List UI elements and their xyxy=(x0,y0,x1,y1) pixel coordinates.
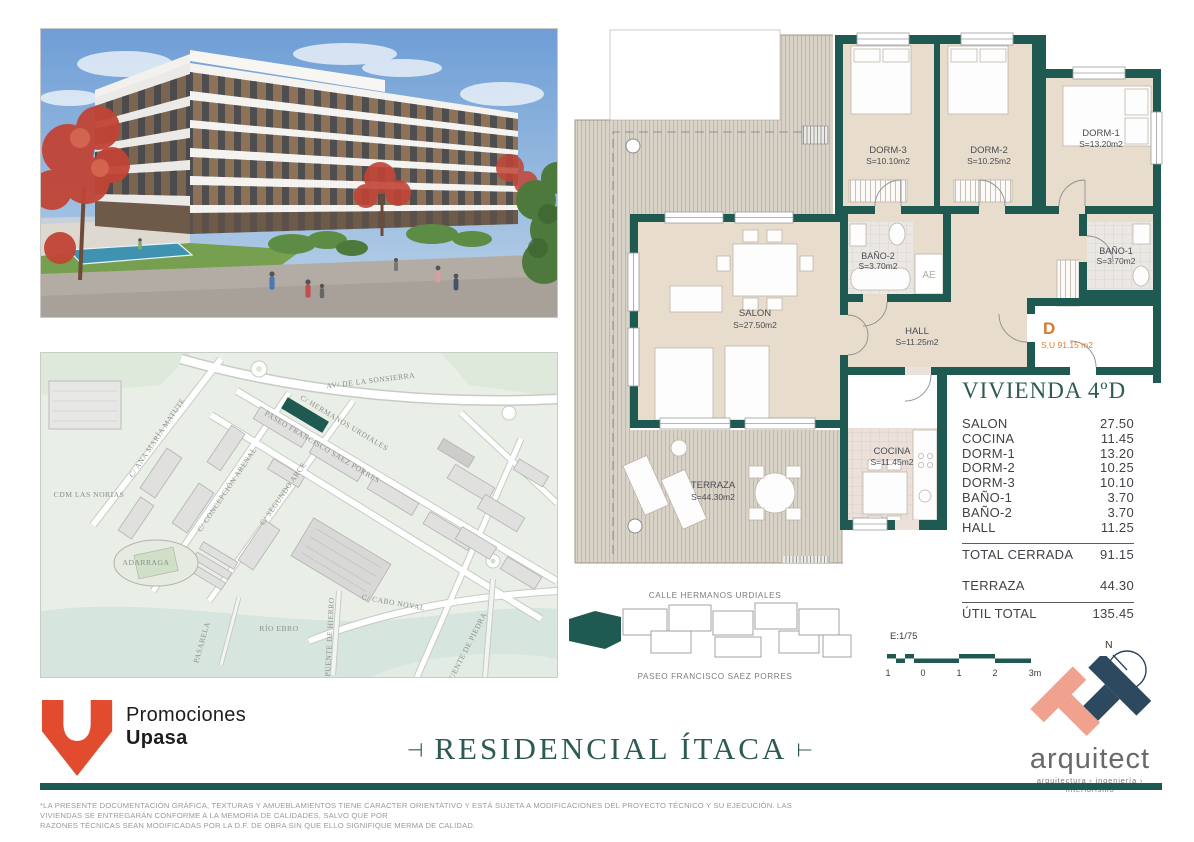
row-value: 3.70 xyxy=(1107,491,1134,506)
unit-su-area: S.U 91.15 m2 xyxy=(1041,340,1093,350)
key-plan-blocks xyxy=(623,603,851,657)
disclaimer-line2: RAZONES TÉCNICAS SEAN MODIFICADAS POR LA… xyxy=(40,821,820,831)
upasa-u-shape xyxy=(42,700,112,776)
terrace-light xyxy=(626,139,640,153)
title-right-mark: ⊢ xyxy=(796,741,813,762)
table-row-salon: SALON27.50 xyxy=(962,417,1134,432)
map-label-cdm: CDM LAS NORIAS xyxy=(54,490,125,499)
table-row-hall: HALL11.25 xyxy=(962,521,1134,536)
row-value: 10.10 xyxy=(1100,476,1134,491)
room-label-dorm2: DORM-2 xyxy=(970,145,1007,156)
scale-tick-3: 2 xyxy=(992,668,997,678)
key-plan-highlighted-unit xyxy=(569,611,621,649)
project-title-text: RESIDENCIAL ÍTACA xyxy=(434,731,785,766)
room-label-dorm1: DORM-1 xyxy=(1082,128,1119,139)
unit-title: VIVIENDA 4ºD xyxy=(962,378,1134,404)
building-render-photo xyxy=(40,28,558,318)
room-area-cocina: S=11.45m2 xyxy=(870,457,913,467)
brochure-sheet: AV/ DE LA SONSIERRA C/ HERMANOS URDIALES… xyxy=(0,0,1194,842)
unit-letter: D xyxy=(1043,319,1055,338)
scale-tick-0: 1 xyxy=(885,668,890,678)
table-row-dorm3: DORM-310.10 xyxy=(962,476,1134,491)
architect-name: arquitect xyxy=(1012,745,1168,773)
disclaimer-line1: *LA PRESENTE DOCUMENTACIÓN GRÁFICA, TEXT… xyxy=(40,801,820,821)
architect-logo-icon xyxy=(1012,656,1168,740)
developer-name-line2: Upasa xyxy=(126,727,246,750)
scale-tick-2: 1 xyxy=(956,668,961,678)
room-area-terraza: S=44.30m2 xyxy=(691,492,735,502)
room-area-dorm1: S=13.20m2 xyxy=(1079,139,1123,149)
map-label-rio-ebro: RÍO EBRO xyxy=(259,623,298,633)
row-value: 91.15 xyxy=(1100,548,1134,563)
room-label-hall: HALL xyxy=(905,326,929,337)
table-row-dorm1: DORM-113.20 xyxy=(962,447,1134,462)
room-area-dorm3: S=10.10m2 xyxy=(866,156,910,166)
disclaimer: *LA PRESENTE DOCUMENTACIÓN GRÁFICA, TEXT… xyxy=(40,801,820,831)
row-value: 44.30 xyxy=(1100,579,1134,594)
row-label: DORM-2 xyxy=(962,461,1015,476)
key-plan: CALLE HERMANOS URDIALES PASEO FRANCISCO … xyxy=(565,585,865,687)
drain-grate xyxy=(783,556,829,563)
ae-closet-label: AE xyxy=(922,270,936,281)
area-table: VIVIENDA 4ºD SALON27.50 COCINA11.45 DORM… xyxy=(962,378,1134,622)
terrace-light-2 xyxy=(628,519,642,533)
room-label-terraza: TERRAZA xyxy=(691,480,736,491)
table-row-total-cerrada: TOTAL CERRADA91.15 xyxy=(962,543,1134,563)
table-row-bano1: BAÑO-13.70 xyxy=(962,491,1134,506)
room-area-bath2: S=3.70m2 xyxy=(859,261,898,271)
row-value: 3.70 xyxy=(1107,506,1134,521)
render-illustration xyxy=(40,28,558,318)
room-area-salon: S=27.50m2 xyxy=(733,320,777,330)
table-row-cocina: COCINA11.45 xyxy=(962,432,1134,447)
row-label: BAÑO-1 xyxy=(962,491,1012,506)
developer-name-line1: Promociones xyxy=(126,704,246,727)
room-label-cocina: COCINA xyxy=(874,446,912,457)
scale-label: E:1/75 xyxy=(890,631,917,642)
table-row-terraza: TERRAZA44.30 xyxy=(962,579,1134,594)
open-roof-area xyxy=(610,30,780,120)
vent-grate xyxy=(802,126,828,144)
scale-segments xyxy=(887,654,1031,663)
table-row-dorm2: DORM-210.25 xyxy=(962,461,1134,476)
row-label: DORM-1 xyxy=(962,447,1015,462)
room-label-dorm3: DORM-3 xyxy=(869,145,906,156)
room-area-dorm2: S=10.25m2 xyxy=(967,156,1011,166)
row-label: DORM-3 xyxy=(962,476,1015,491)
row-value: 135.45 xyxy=(1092,607,1134,622)
row-label: HALL xyxy=(962,521,996,536)
north-label: N xyxy=(1105,639,1113,651)
title-left-mark: ⊣ xyxy=(407,741,424,762)
room-area-bath1: S=3.70m2 xyxy=(1097,256,1136,266)
developer-name: Promociones Upasa xyxy=(126,704,246,750)
upasa-logo-icon xyxy=(40,698,118,780)
room-label-bath1: BAÑO-1 xyxy=(1099,246,1133,256)
row-value: 11.45 xyxy=(1101,432,1134,447)
room-area-hall: S=11.25m2 xyxy=(895,337,938,347)
row-value: 10.25 xyxy=(1100,461,1134,476)
key-plan-street-bottom: PASEO FRANCISCO SAEZ PORRES xyxy=(638,672,793,681)
row-label: COCINA xyxy=(962,432,1014,447)
location-map: AV/ DE LA SONSIERRA C/ HERMANOS URDIALES… xyxy=(40,352,558,678)
row-label: TOTAL CERRADA xyxy=(962,548,1073,563)
project-title: ⊣ RESIDENCIAL ÍTACA ⊢ xyxy=(250,731,970,767)
row-value: 27.50 xyxy=(1100,417,1134,432)
row-label: ÚTIL TOTAL xyxy=(962,607,1037,622)
footer-divider-bar xyxy=(40,783,1162,790)
room-label-bath2: BAÑO-2 xyxy=(861,251,895,261)
key-plan-street-top: CALLE HERMANOS URDIALES xyxy=(649,591,782,600)
scale-tick-1: 0 xyxy=(920,668,925,678)
architect-logo-block: arquitect arquitectura › ingeniería › in… xyxy=(1012,656,1168,794)
map-illustration: AV/ DE LA SONSIERRA C/ HERMANOS URDIALES… xyxy=(41,353,557,677)
key-plan-drawing: CALLE HERMANOS URDIALES PASEO FRANCISCO … xyxy=(565,585,865,687)
row-label: BAÑO-2 xyxy=(962,506,1012,521)
row-value: 11.25 xyxy=(1101,521,1134,536)
row-value: 13.20 xyxy=(1100,447,1134,462)
map-label-adarraga: ADARRAGA xyxy=(122,558,169,567)
row-label: TERRAZA xyxy=(962,579,1025,594)
row-label: SALON xyxy=(962,417,1008,432)
table-row-bano2: BAÑO-23.70 xyxy=(962,506,1134,521)
room-label-salon: SALON xyxy=(739,308,771,319)
table-row-util-total: ÚTIL TOTAL135.45 xyxy=(962,602,1134,622)
